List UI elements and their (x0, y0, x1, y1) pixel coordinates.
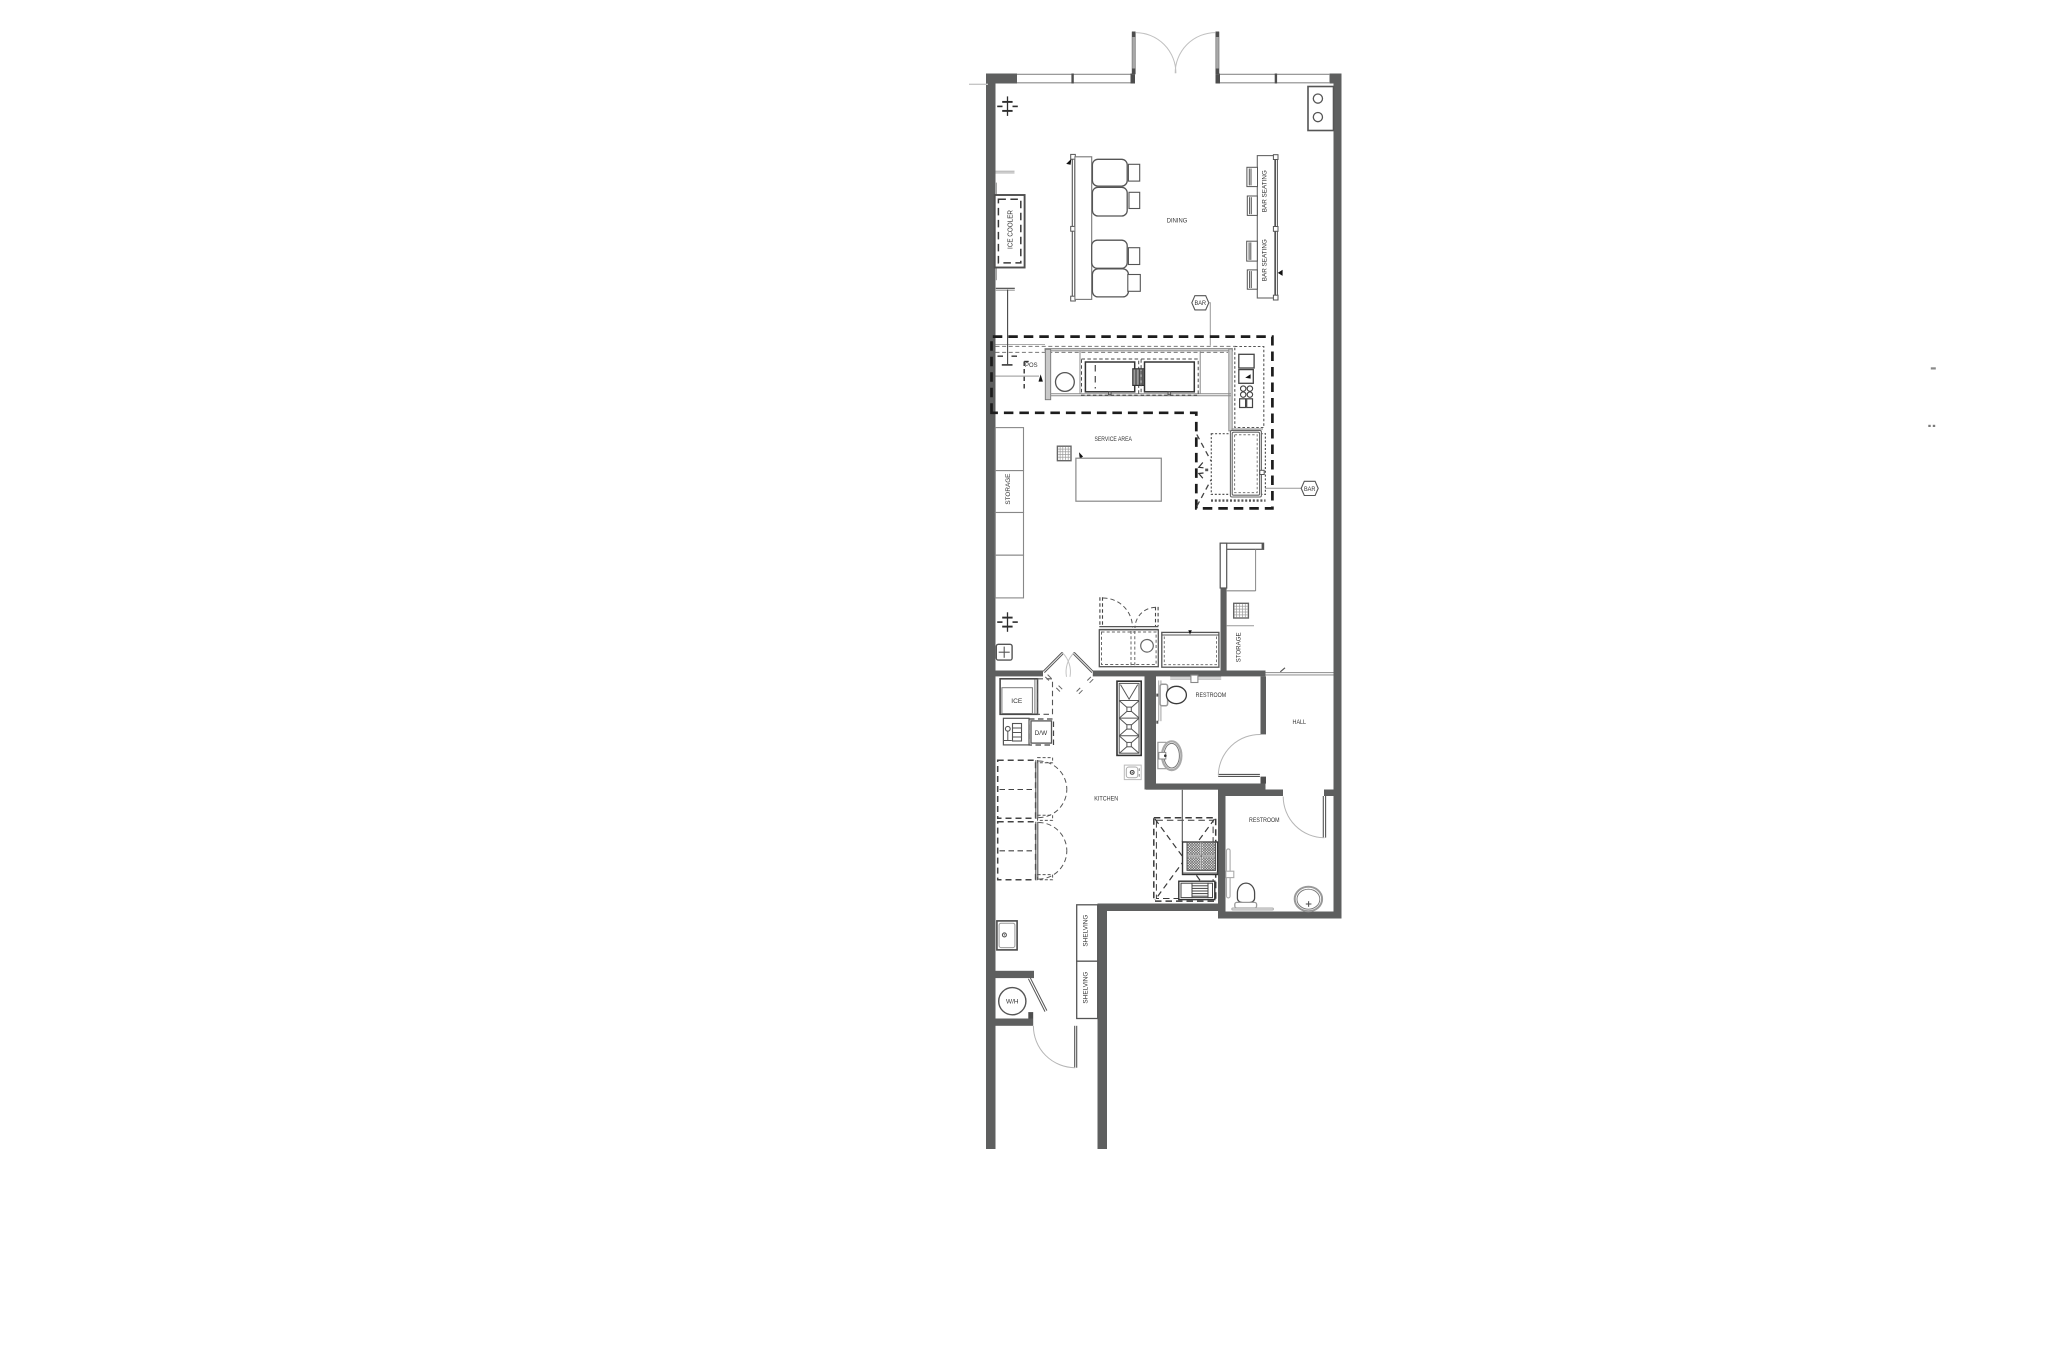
svg-text:STORAGE: STORAGE (1005, 473, 1012, 504)
svg-text:RESTROOM: RESTROOM (1196, 692, 1227, 699)
svg-text:D/W: D/W (1035, 730, 1048, 737)
svg-text:SERVICE AREA: SERVICE AREA (1094, 436, 1132, 443)
svg-text:BAR SEATING: BAR SEATING (1261, 239, 1268, 281)
svg-text:BAR: BAR (1304, 486, 1316, 493)
svg-text:KITCHEN: KITCHEN (1094, 796, 1118, 803)
svg-text:SHELVING: SHELVING (1082, 915, 1089, 947)
svg-text:HALL: HALL (1293, 719, 1307, 726)
svg-text:BAR: BAR (1195, 300, 1207, 307)
svg-text:SHELVING: SHELVING (1082, 972, 1089, 1004)
svg-text:STORAGE: STORAGE (1235, 632, 1242, 663)
svg-text:POS: POS (1025, 362, 1038, 369)
svg-text:DINING: DINING (1167, 218, 1188, 225)
svg-text:W/H: W/H (1006, 999, 1019, 1006)
svg-text:ICE COOLER: ICE COOLER (1008, 210, 1015, 249)
svg-text:BAR SEATING: BAR SEATING (1261, 170, 1268, 212)
svg-text:RESTROOM: RESTROOM (1249, 817, 1280, 824)
svg-text:ICE: ICE (1011, 698, 1022, 705)
